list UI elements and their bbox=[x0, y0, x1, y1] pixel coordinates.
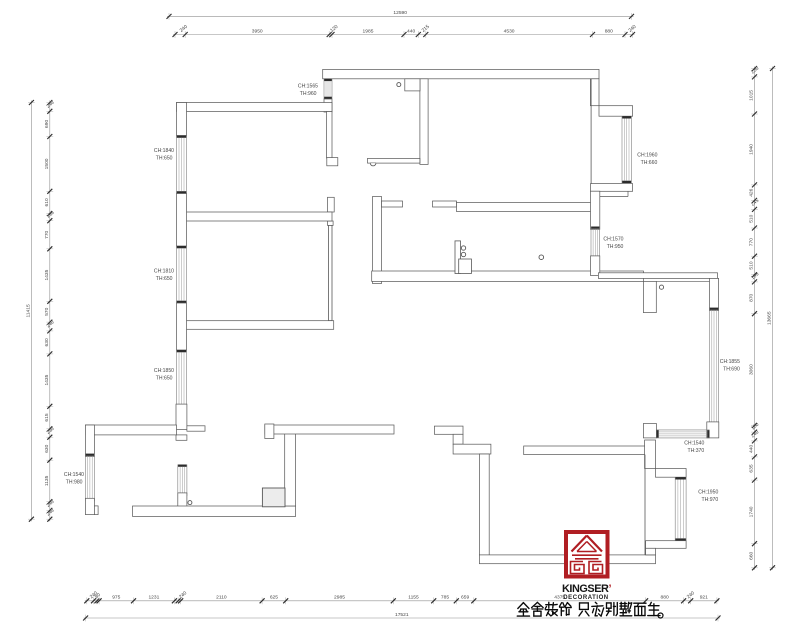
svg-text:690: 690 bbox=[44, 120, 50, 128]
svg-text:TH:690: TH:690 bbox=[723, 367, 740, 373]
svg-text:CH:1960: CH:1960 bbox=[637, 153, 657, 159]
svg-text:770: 770 bbox=[44, 230, 50, 238]
svg-text:3950: 3950 bbox=[252, 28, 263, 34]
svg-text:CH:1540: CH:1540 bbox=[64, 472, 84, 478]
svg-text:1500: 1500 bbox=[44, 158, 50, 169]
svg-text:CH:1565: CH:1565 bbox=[298, 84, 318, 90]
svg-text:1015: 1015 bbox=[749, 90, 755, 101]
svg-text:770: 770 bbox=[749, 238, 755, 246]
svg-text:1435: 1435 bbox=[44, 374, 50, 385]
svg-text:1155: 1155 bbox=[408, 595, 419, 601]
svg-text:CH:1850: CH:1850 bbox=[154, 368, 174, 374]
svg-text:1231: 1231 bbox=[148, 595, 159, 601]
svg-text:CH:1840: CH:1840 bbox=[154, 148, 174, 154]
svg-text:CH:1540: CH:1540 bbox=[684, 441, 704, 447]
svg-text:440: 440 bbox=[749, 445, 755, 453]
svg-text:TH:950: TH:950 bbox=[607, 244, 624, 250]
svg-text:3060: 3060 bbox=[749, 364, 755, 375]
svg-text:659: 659 bbox=[461, 595, 469, 601]
svg-text:921: 921 bbox=[700, 595, 708, 601]
svg-text:TH:970: TH:970 bbox=[702, 497, 719, 503]
svg-text:TH:650: TH:650 bbox=[156, 156, 173, 162]
svg-text:615: 615 bbox=[44, 413, 50, 421]
svg-text:CH:1855: CH:1855 bbox=[720, 359, 740, 365]
svg-text:510: 510 bbox=[749, 214, 755, 222]
svg-text:880: 880 bbox=[605, 28, 613, 34]
svg-text:12590: 12590 bbox=[393, 10, 407, 16]
svg-text:2110: 2110 bbox=[216, 595, 227, 601]
svg-text:TH:660: TH:660 bbox=[641, 160, 658, 166]
svg-text:870: 870 bbox=[749, 293, 755, 301]
svg-text:880: 880 bbox=[661, 595, 669, 601]
svg-text:TH:650: TH:650 bbox=[156, 376, 173, 382]
svg-text:1435: 1435 bbox=[44, 269, 50, 280]
svg-text:975: 975 bbox=[112, 595, 120, 601]
svg-text:1940: 1940 bbox=[749, 144, 755, 155]
svg-text:TH:960: TH:960 bbox=[300, 91, 317, 97]
svg-text:630: 630 bbox=[44, 338, 50, 346]
svg-text:DECORATION: DECORATION bbox=[563, 595, 608, 601]
svg-text:17521: 17521 bbox=[395, 612, 409, 618]
svg-text:KINGSER’: KINGSER’ bbox=[562, 583, 611, 595]
svg-text:11415: 11415 bbox=[26, 304, 32, 318]
svg-text:440: 440 bbox=[407, 28, 415, 34]
svg-text:2985: 2985 bbox=[334, 595, 345, 601]
svg-text:4530: 4530 bbox=[504, 28, 515, 34]
svg-text:785: 785 bbox=[441, 595, 449, 601]
svg-text:TH:370: TH:370 bbox=[688, 448, 705, 454]
svg-text:630: 630 bbox=[44, 444, 50, 452]
svg-text:CH:1810: CH:1810 bbox=[154, 269, 174, 275]
svg-text:TH:980: TH:980 bbox=[66, 480, 83, 486]
svg-text:1985: 1985 bbox=[363, 28, 374, 34]
svg-text:635: 635 bbox=[749, 464, 755, 472]
svg-text:TH:650: TH:650 bbox=[156, 276, 173, 282]
svg-text:13665: 13665 bbox=[767, 311, 773, 325]
svg-text:510: 510 bbox=[749, 261, 755, 269]
svg-text:625: 625 bbox=[270, 595, 278, 601]
svg-text:570: 570 bbox=[44, 307, 50, 315]
svg-text:660: 660 bbox=[749, 551, 755, 559]
svg-text:1135: 1135 bbox=[44, 475, 50, 486]
svg-text:426: 426 bbox=[749, 188, 755, 196]
svg-text:610: 610 bbox=[44, 198, 50, 206]
svg-text:CH:1950: CH:1950 bbox=[698, 490, 718, 496]
svg-text:CH:1570: CH:1570 bbox=[603, 237, 623, 243]
svg-text:1740: 1740 bbox=[749, 506, 755, 517]
